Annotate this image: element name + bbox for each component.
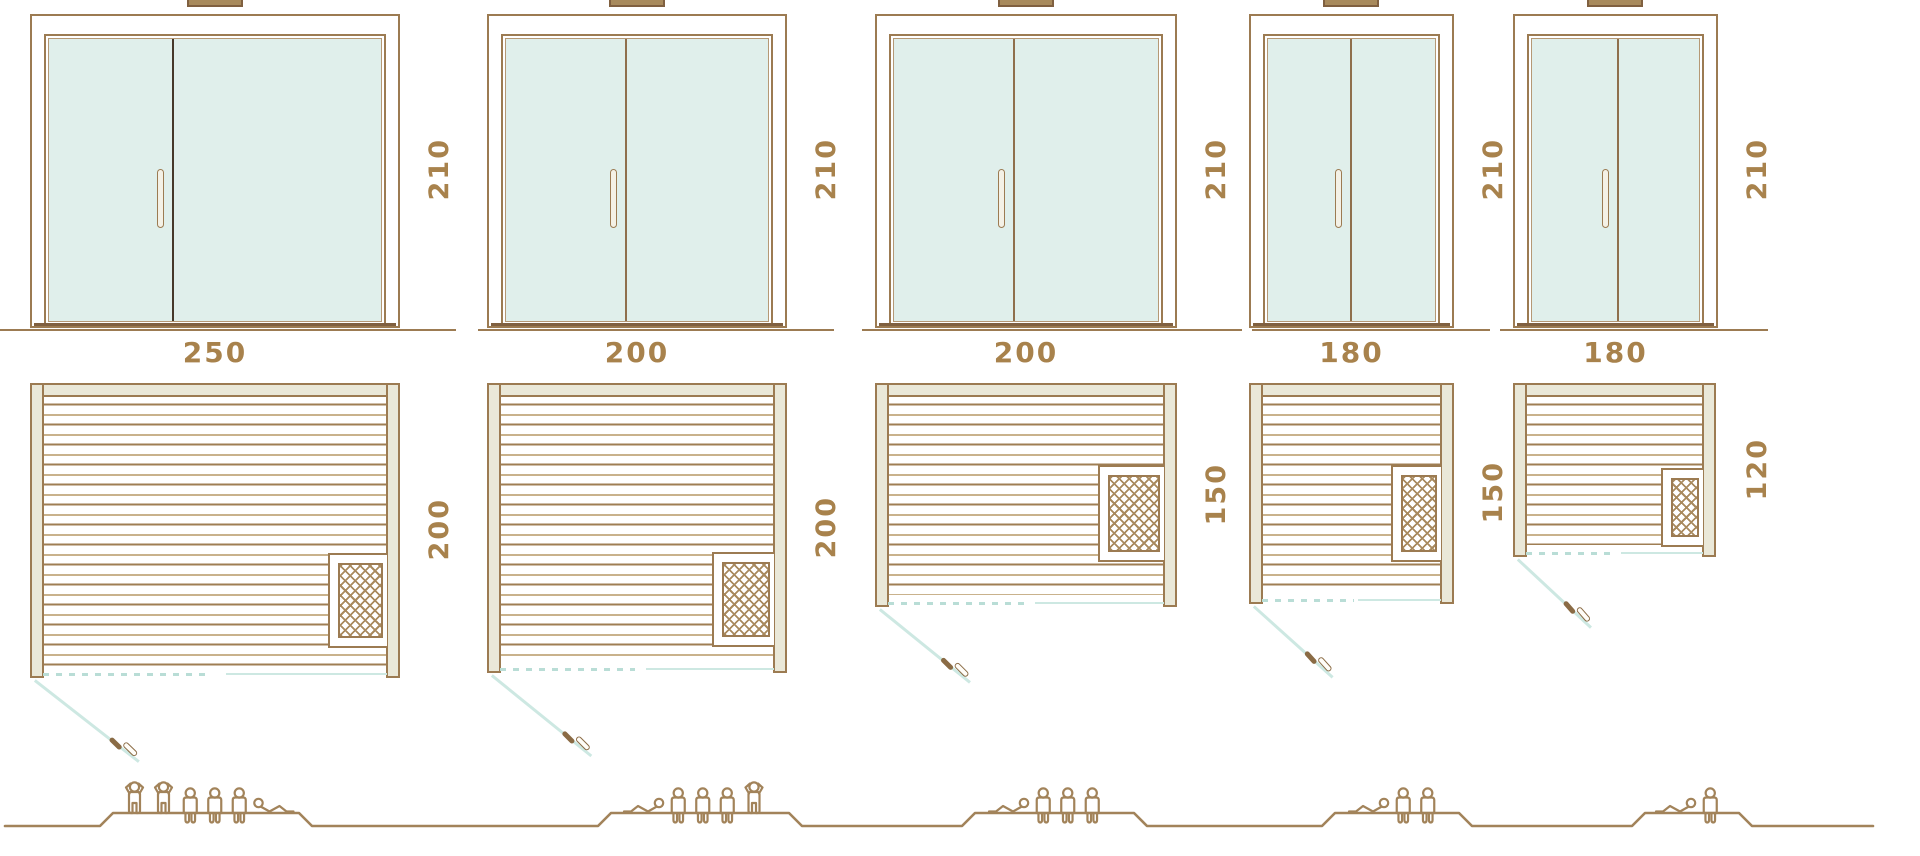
plan-left-wall <box>30 383 44 678</box>
plan-door-handle-icon <box>940 656 954 670</box>
person-standing-icon <box>155 782 172 813</box>
plan-door-handle-icon <box>562 730 576 744</box>
door-handle <box>610 169 617 228</box>
door-glass <box>505 38 769 322</box>
person-sitting-icon <box>233 788 246 822</box>
heater-stones <box>1108 475 1160 552</box>
elevation-height-label: 210 <box>1478 138 1509 200</box>
door-glass <box>1531 38 1700 322</box>
heater-stones <box>1671 478 1699 537</box>
plan-depth-label: 200 <box>424 498 455 560</box>
plan-depth-label: 150 <box>1201 463 1232 525</box>
roof-vent <box>187 0 243 7</box>
ground-line <box>862 329 1242 331</box>
person-sitting-icon <box>1037 788 1050 822</box>
roof-vent <box>998 0 1054 7</box>
plan-depth-label: 200 <box>811 496 842 558</box>
door-opening-dashed-line <box>500 668 635 671</box>
glass-double-door <box>44 34 386 326</box>
door-sill <box>879 323 1173 327</box>
door-divider <box>625 39 627 321</box>
door-handle <box>157 169 164 228</box>
elevation-height-label: 210 <box>811 138 842 200</box>
heater <box>1098 465 1164 562</box>
heater <box>1661 468 1703 547</box>
door-swing-line <box>879 608 971 683</box>
door-sill <box>1517 323 1714 327</box>
plan-depth-label: 120 <box>1742 438 1773 500</box>
width-label: 180 <box>1513 336 1718 369</box>
capacity-group-6 <box>126 782 294 822</box>
door-divider <box>1617 39 1619 321</box>
elevation-height-label: 210 <box>1201 138 1232 200</box>
front-elevation <box>875 14 1177 328</box>
width-label: 180 <box>1249 336 1454 369</box>
plan-door-leaf-icon <box>575 735 591 751</box>
person-standing-icon <box>746 782 763 813</box>
floor-plan <box>30 383 400 678</box>
capacity-group-2 <box>1656 788 1717 822</box>
person-sitting-icon <box>184 788 197 822</box>
person-sitting-icon <box>1397 788 1410 822</box>
person-sitting-icon <box>721 788 734 822</box>
plan-back-wall <box>875 383 1177 397</box>
plan-door-leaf-icon <box>953 662 969 678</box>
door-handle <box>998 169 1005 228</box>
plan-right-wall <box>1440 383 1454 604</box>
door-divider <box>1350 39 1352 321</box>
plan-left-wall <box>875 383 889 607</box>
person-lying-icon <box>254 799 293 812</box>
door-handle <box>1602 169 1609 228</box>
person-sitting-icon <box>1421 788 1434 822</box>
capacity-group-3 <box>1349 788 1434 822</box>
person-sitting-icon <box>672 788 685 822</box>
door-divider <box>172 39 175 321</box>
plan-depth-label: 150 <box>1478 461 1509 523</box>
plan-door-leaf-icon <box>1576 606 1592 623</box>
front-elevation <box>487 14 787 328</box>
plan-back-wall <box>487 383 787 397</box>
floor-plan <box>1249 383 1454 604</box>
door-glass <box>893 38 1159 322</box>
plan-right-wall <box>1163 383 1177 607</box>
door-sill <box>491 323 783 327</box>
door-swing-line <box>1517 558 1592 628</box>
door-handle <box>1335 169 1342 228</box>
roof-vent <box>1587 0 1643 7</box>
door-glass <box>48 38 382 322</box>
glass-double-door <box>1263 34 1440 326</box>
heater-stones <box>338 563 383 638</box>
plan-back-wall <box>30 383 400 397</box>
plan-door-handle-icon <box>1304 650 1318 664</box>
front-elevation <box>1513 14 1718 328</box>
plan-door-handle-icon <box>109 736 123 750</box>
door-glass <box>1267 38 1436 322</box>
capacity-group-4 <box>989 788 1099 822</box>
heater <box>1391 465 1441 562</box>
glass-double-door <box>889 34 1163 326</box>
door-opening-dashed-line <box>1526 552 1617 555</box>
width-label: 250 <box>30 336 400 369</box>
plan-left-wall <box>487 383 501 673</box>
ground-line <box>0 329 456 331</box>
capacity-group-5 <box>624 782 763 822</box>
plan-back-wall <box>1513 383 1716 397</box>
front-elevation <box>30 14 400 328</box>
floor-plan <box>1513 383 1716 557</box>
heater <box>328 553 387 648</box>
roof-vent <box>1323 0 1379 7</box>
elevation-height-label: 210 <box>424 138 455 200</box>
plan-right-wall <box>773 383 787 673</box>
bench-profile-line <box>5 813 1873 826</box>
plan-door-handle-icon <box>1563 600 1577 615</box>
glass-front-line <box>226 673 387 676</box>
person-lying-icon <box>1349 799 1388 812</box>
width-label: 200 <box>875 336 1177 369</box>
door-swing-line <box>491 674 592 756</box>
plan-door-leaf-icon <box>1317 656 1333 673</box>
person-sitting-icon <box>1704 788 1717 822</box>
plan-door-leaf-icon <box>122 741 138 757</box>
heater-stones <box>722 562 770 637</box>
ground-line <box>1500 329 1768 331</box>
sauna-size-diagram: 210 250 200 <box>0 0 1920 856</box>
plan-right-wall <box>386 383 400 678</box>
door-sill <box>34 323 396 327</box>
glass-front-line <box>1035 602 1164 605</box>
door-swing-line <box>34 679 140 762</box>
ground-line <box>478 329 834 331</box>
glass-front-line <box>646 668 774 671</box>
glass-double-door <box>501 34 773 326</box>
plan-right-wall <box>1702 383 1716 557</box>
glass-double-door <box>1527 34 1704 326</box>
person-lying-icon <box>1656 799 1695 812</box>
door-divider <box>1013 39 1015 321</box>
floor-plan <box>875 383 1177 607</box>
plan-left-wall <box>1249 383 1263 604</box>
elevation-height-label: 210 <box>1742 138 1773 200</box>
plan-back-wall <box>1249 383 1454 397</box>
person-sitting-icon <box>696 788 709 822</box>
door-opening-dashed-line <box>43 673 210 676</box>
ground-line <box>1252 329 1490 331</box>
door-opening-dashed-line <box>888 602 1024 605</box>
person-sitting-icon <box>1086 788 1099 822</box>
front-elevation <box>1249 14 1454 328</box>
plan-left-wall <box>1513 383 1527 557</box>
door-opening-dashed-line <box>1262 599 1354 602</box>
width-label: 200 <box>487 336 787 369</box>
capacity-strip <box>0 756 1920 856</box>
person-standing-icon <box>126 782 143 813</box>
person-sitting-icon <box>208 788 221 822</box>
glass-front-line <box>1358 599 1441 602</box>
door-swing-line <box>1253 605 1333 678</box>
person-lying-icon <box>624 799 663 812</box>
person-sitting-icon <box>1061 788 1074 822</box>
glass-front-line <box>1621 552 1703 555</box>
floor-plan <box>487 383 787 673</box>
heater <box>712 552 774 647</box>
door-sill <box>1253 323 1450 327</box>
heater-stones <box>1401 475 1437 552</box>
roof-vent <box>609 0 665 7</box>
person-lying-icon <box>989 799 1028 812</box>
